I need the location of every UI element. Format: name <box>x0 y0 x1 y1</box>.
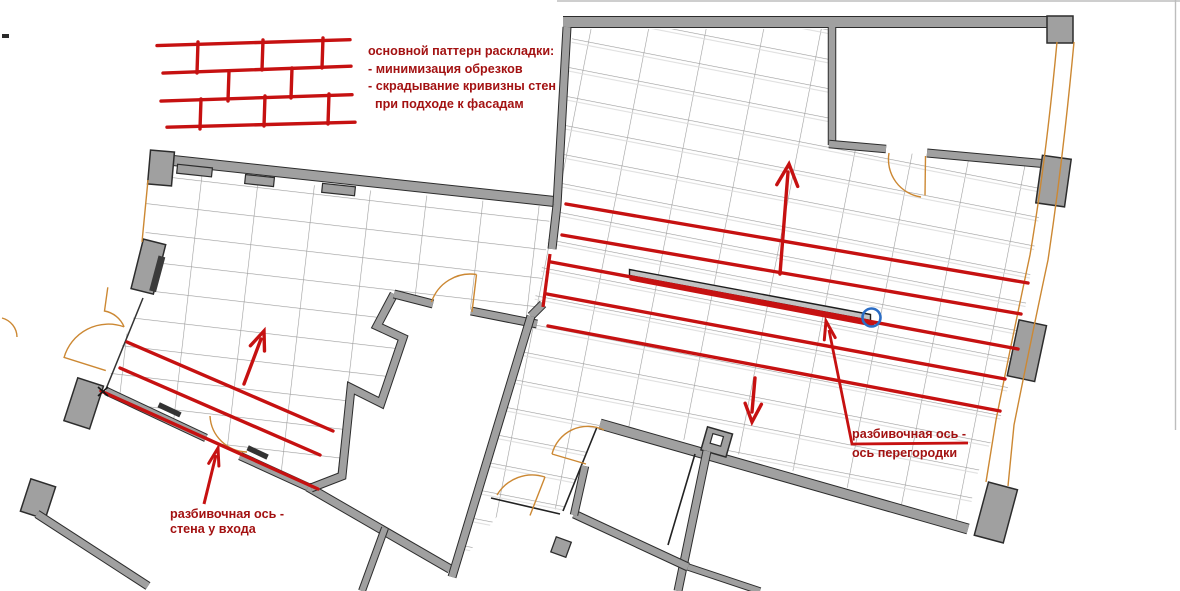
svg-text:- минимизация обрезков: - минимизация обрезков <box>368 62 523 76</box>
svg-text:стена у входа: стена у входа <box>170 522 257 536</box>
svg-text:разбивочная ось -: разбивочная ось - <box>170 507 284 521</box>
svg-text:ось перегородки: ось перегородки <box>852 446 957 460</box>
svg-text:основной паттерн раскладки:: основной паттерн раскладки: <box>368 44 554 58</box>
svg-text:- скрадывание кривизны стен: - скрадывание кривизны стен <box>368 79 556 93</box>
svg-text:разбивочная ось -: разбивочная ось - <box>852 427 966 441</box>
svg-text:при подходе к фасадам: при подходе к фасадам <box>375 97 524 111</box>
